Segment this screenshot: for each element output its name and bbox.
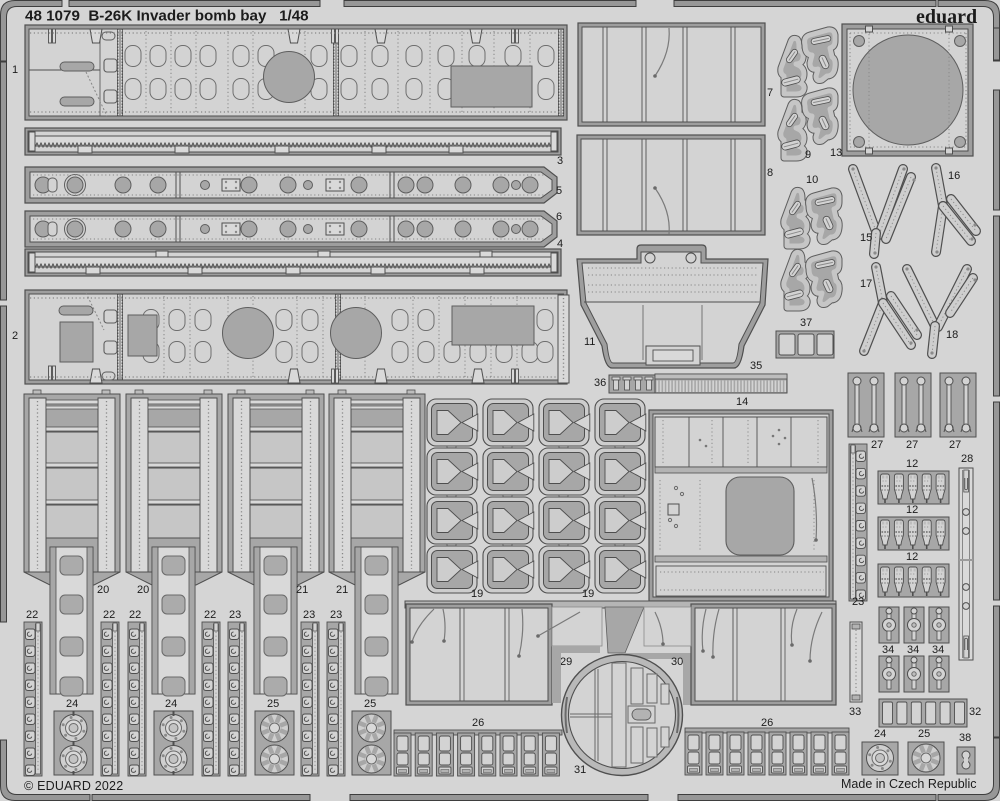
svg-text:25: 25 (364, 698, 376, 710)
svg-text:20: 20 (97, 584, 109, 596)
svg-text:21: 21 (296, 584, 308, 596)
svg-text:12: 12 (906, 458, 918, 470)
svg-text:18: 18 (946, 329, 958, 341)
svg-text:15: 15 (860, 232, 872, 244)
svg-text:26: 26 (761, 717, 773, 729)
svg-text:36: 36 (594, 377, 606, 389)
svg-text:30: 30 (671, 656, 683, 668)
svg-text:34: 34 (882, 644, 894, 656)
svg-text:22: 22 (129, 609, 141, 621)
svg-text:26: 26 (472, 717, 484, 729)
svg-text:25: 25 (918, 728, 930, 740)
svg-text:1: 1 (12, 64, 18, 76)
svg-text:Made in Czech Republic: Made in Czech Republic (841, 777, 977, 791)
svg-text:21: 21 (336, 584, 348, 596)
svg-text:23: 23 (229, 609, 241, 621)
svg-text:12: 12 (906, 504, 918, 516)
svg-text:19: 19 (582, 588, 594, 600)
svg-text:34: 34 (907, 644, 919, 656)
svg-text:31: 31 (574, 764, 586, 776)
svg-text:3: 3 (557, 155, 563, 167)
svg-text:23: 23 (330, 609, 342, 621)
svg-text:38: 38 (959, 732, 971, 744)
svg-text:23: 23 (303, 609, 315, 621)
svg-text:19: 19 (471, 588, 483, 600)
svg-text:27: 27 (949, 439, 961, 451)
svg-text:22: 22 (204, 609, 216, 621)
svg-text:16: 16 (948, 170, 960, 182)
svg-text:17: 17 (860, 278, 872, 290)
svg-text:22: 22 (103, 609, 115, 621)
svg-text:12: 12 (906, 551, 918, 563)
svg-text:7: 7 (767, 87, 773, 99)
svg-text:29: 29 (560, 656, 572, 668)
svg-text:4: 4 (557, 238, 563, 250)
svg-text:8: 8 (767, 167, 773, 179)
svg-text:48 1079 B-26K Invader bomb ba: 48 1079 B-26K Invader bomb bay 1/48 (25, 8, 309, 25)
svg-text:20: 20 (137, 584, 149, 596)
svg-text:24: 24 (874, 728, 886, 740)
svg-text:23: 23 (852, 596, 864, 608)
svg-text:27: 27 (906, 439, 918, 451)
svg-text:27: 27 (871, 439, 883, 451)
svg-text:© EDUARD 2022: © EDUARD 2022 (24, 779, 123, 793)
svg-text:13: 13 (830, 147, 842, 159)
svg-text:34: 34 (932, 644, 944, 656)
svg-text:14: 14 (736, 396, 748, 408)
svg-text:22: 22 (26, 609, 38, 621)
svg-text:33: 33 (849, 706, 861, 718)
svg-text:28: 28 (961, 453, 973, 465)
svg-text:6: 6 (556, 211, 562, 223)
svg-text:10: 10 (806, 174, 818, 186)
svg-text:11: 11 (584, 336, 595, 348)
svg-text:9: 9 (805, 149, 811, 161)
svg-text:25: 25 (267, 698, 279, 710)
svg-text:24: 24 (66, 698, 78, 710)
svg-text:5: 5 (556, 185, 562, 197)
svg-text:32: 32 (969, 706, 981, 718)
svg-text:37: 37 (800, 317, 812, 329)
svg-text:2: 2 (12, 330, 18, 342)
svg-text:24: 24 (165, 698, 177, 710)
svg-text:35: 35 (750, 360, 762, 372)
